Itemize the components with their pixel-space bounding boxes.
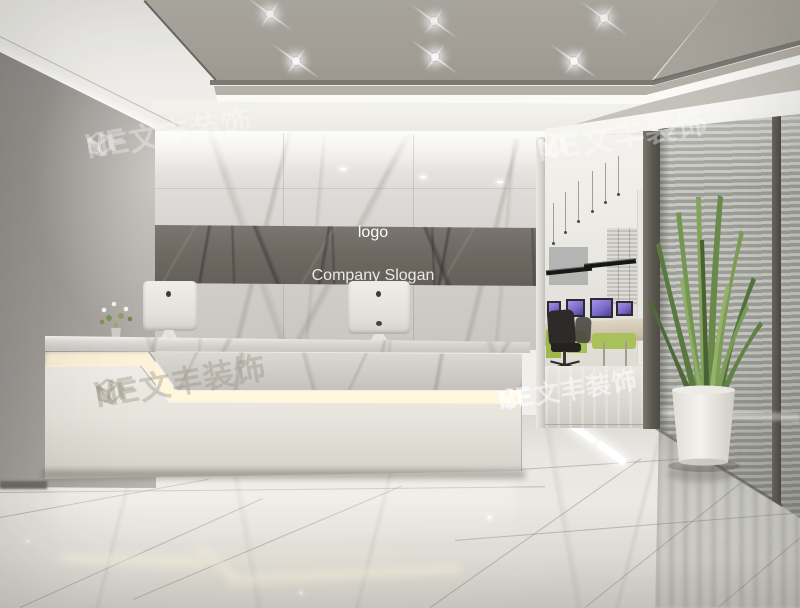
ceiling-tray: [145, 0, 718, 80]
imac-stand-hole: [376, 321, 382, 326]
spotlight-icon: [265, 9, 275, 19]
flower-bouquet: [96, 298, 138, 332]
pendant-wire: [592, 171, 593, 211]
office-desk-leg: [603, 343, 605, 366]
pendant-bulb-icon: [591, 210, 594, 213]
spotlight-icon: [569, 56, 579, 66]
office-chair-back: [574, 317, 591, 344]
floor-glint: [488, 516, 491, 519]
pendant-bulb-icon: [564, 231, 567, 234]
logo-text: logo: [308, 224, 438, 242]
spotlight-icon: [430, 52, 440, 62]
imac-monitor: [348, 281, 410, 334]
pendant-wire: [578, 181, 579, 221]
potted-plant: [618, 185, 788, 477]
reception-interior-render: logo Company Slogan: [0, 0, 800, 608]
wall-glint: [420, 176, 426, 178]
office-chair-seat: [551, 343, 581, 352]
floor-reflection-soft: [55, 478, 515, 548]
pendant-bulb-icon: [577, 220, 580, 223]
pendant-bulb-icon: [604, 201, 607, 204]
spotlight-icon: [429, 16, 439, 26]
apple-logo-icon: [376, 291, 381, 297]
pendant-wire: [565, 192, 566, 232]
wall-glint: [497, 181, 503, 183]
wall-glint: [340, 168, 346, 170]
pendant-wire: [605, 163, 606, 202]
office-chair-back: [547, 309, 576, 347]
floor-glint: [27, 540, 29, 542]
office-monitor: [590, 298, 613, 318]
marble-wall-joint: [155, 188, 543, 189]
left-wall-baseboard: [0, 481, 47, 489]
desk-bottom-shadow: [42, 470, 525, 479]
spotlight-icon: [291, 56, 301, 66]
imac-monitor: [143, 281, 197, 331]
plant-leaves: [648, 195, 763, 407]
apple-logo-icon: [166, 291, 171, 297]
pendant-wire: [553, 203, 554, 243]
plant-pot: [668, 386, 740, 473]
spotlight-icon: [599, 13, 609, 23]
floor-glint: [300, 592, 302, 594]
pendant-bulb-icon: [552, 242, 555, 245]
office-chair-post: [563, 351, 566, 364]
